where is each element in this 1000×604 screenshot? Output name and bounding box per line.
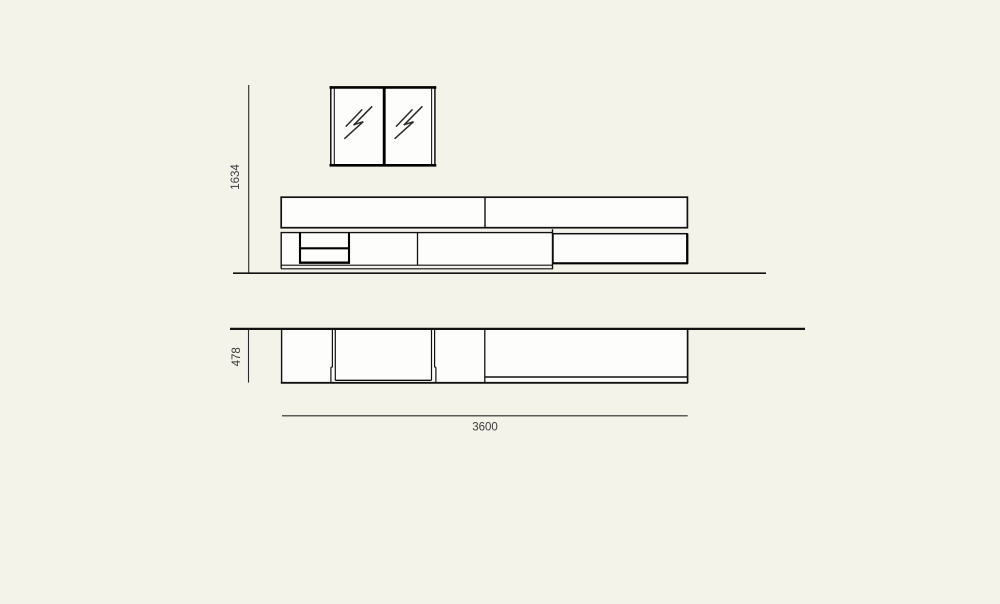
svg-text:478: 478 — [231, 347, 243, 366]
svg-text:3600: 3600 — [472, 422, 498, 434]
svg-text:1634: 1634 — [230, 164, 242, 190]
